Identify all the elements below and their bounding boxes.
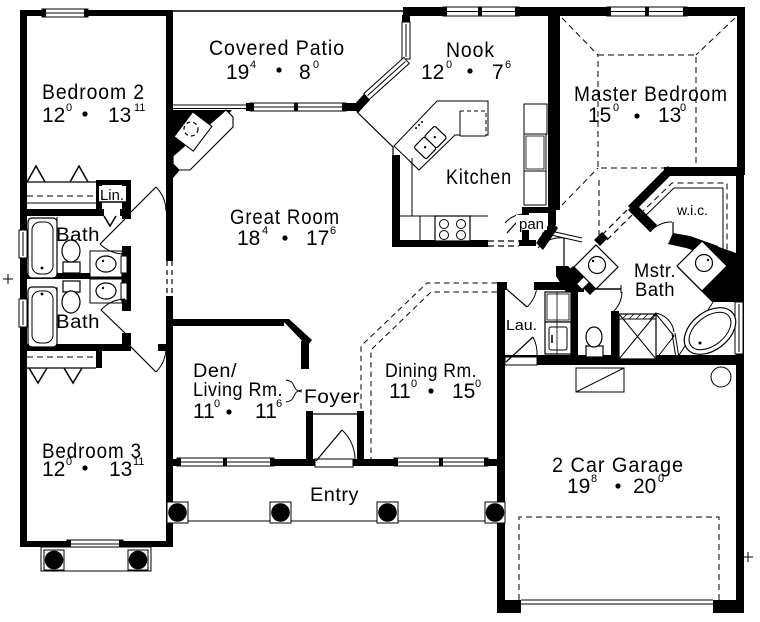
svg-text:18: 18 [237,227,260,250]
svg-text:Kitchen: Kitchen [446,166,512,189]
svg-text:Great Room: Great Room [230,206,340,229]
svg-text:0: 0 [446,59,452,71]
svg-text:Entry: Entry [310,485,359,506]
svg-text:Bedroom 2: Bedroom 2 [42,81,145,104]
svg-text:11: 11 [389,380,411,403]
svg-text:13: 13 [658,104,681,127]
svg-text:11: 11 [193,400,215,423]
svg-text:8: 8 [591,473,597,485]
svg-text:0: 0 [658,473,664,485]
svg-text:11: 11 [255,400,277,423]
svg-text:6: 6 [276,398,282,410]
svg-text:11: 11 [134,102,145,114]
svg-text:11: 11 [133,456,144,468]
svg-text:15: 15 [588,104,611,127]
svg-text:0: 0 [613,102,619,114]
svg-text:Living Rm.: Living Rm. [193,380,283,401]
svg-text:2 Car Garage: 2 Car Garage [552,454,684,477]
svg-text:4: 4 [262,225,268,237]
svg-text:20: 20 [633,475,656,498]
svg-text:0: 0 [475,378,481,390]
svg-text:13: 13 [109,458,132,481]
svg-text:17: 17 [306,227,329,250]
svg-text:13: 13 [108,104,131,127]
svg-text:15: 15 [452,380,475,403]
svg-text:0: 0 [66,456,72,468]
svg-text:Mstr.: Mstr. [634,261,676,282]
svg-text:Nook: Nook [446,39,495,62]
svg-text:Lau.: Lau. [506,317,537,334]
svg-text:0: 0 [680,102,686,114]
svg-text:7: 7 [492,61,504,84]
svg-text:Dining Rm.: Dining Rm. [385,361,477,382]
svg-text:19: 19 [567,475,590,498]
svg-text:Den/: Den/ [193,361,237,382]
svg-text:6: 6 [330,225,336,237]
svg-text:w.i.c.: w.i.c. [676,202,708,218]
svg-text:12: 12 [42,104,65,127]
svg-text:12: 12 [42,458,65,481]
svg-text:Master Bedroom: Master Bedroom [574,83,728,106]
svg-text:0: 0 [214,398,220,410]
svg-text:12: 12 [421,61,444,84]
svg-text:0: 0 [313,59,319,71]
svg-text:0: 0 [66,102,72,114]
svg-text:19: 19 [226,61,249,84]
svg-text:Foyer: Foyer [304,387,360,408]
svg-text:4: 4 [250,59,256,71]
svg-text:Covered Patio: Covered Patio [209,37,345,60]
svg-text:8: 8 [299,61,311,84]
svg-text:6: 6 [505,59,511,71]
svg-text:Bath: Bath [635,280,675,301]
svg-text:pan: pan [519,216,544,233]
svg-text:Bath: Bath [56,225,100,246]
svg-text:0: 0 [411,378,417,390]
svg-text:Bath: Bath [56,312,100,333]
